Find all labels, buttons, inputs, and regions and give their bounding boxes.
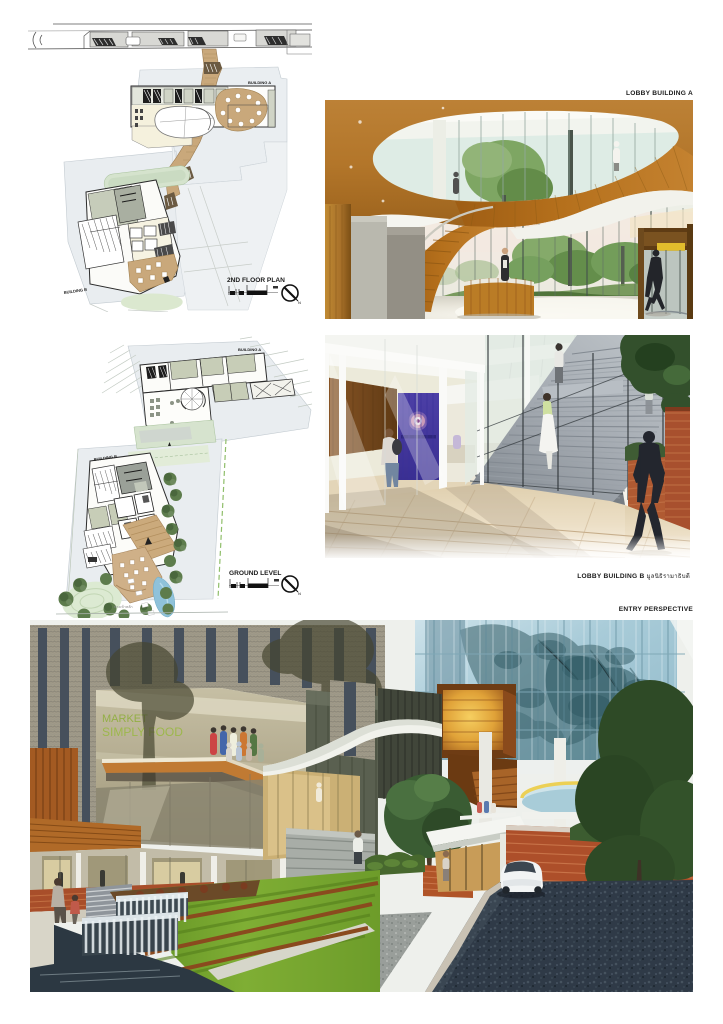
- svg-text:BUILDING A: BUILDING A: [248, 80, 271, 85]
- svg-text:SIMPLY FOOD: SIMPLY FOOD: [102, 725, 183, 739]
- svg-text:ทางเข้าหลัก: ทางเข้าหลัก: [114, 604, 133, 609]
- svg-text:N: N: [298, 300, 301, 305]
- svg-text:BUILDING A: BUILDING A: [238, 347, 261, 352]
- svg-text:MARKET: MARKET: [102, 713, 148, 725]
- svg-text:N: N: [298, 591, 301, 596]
